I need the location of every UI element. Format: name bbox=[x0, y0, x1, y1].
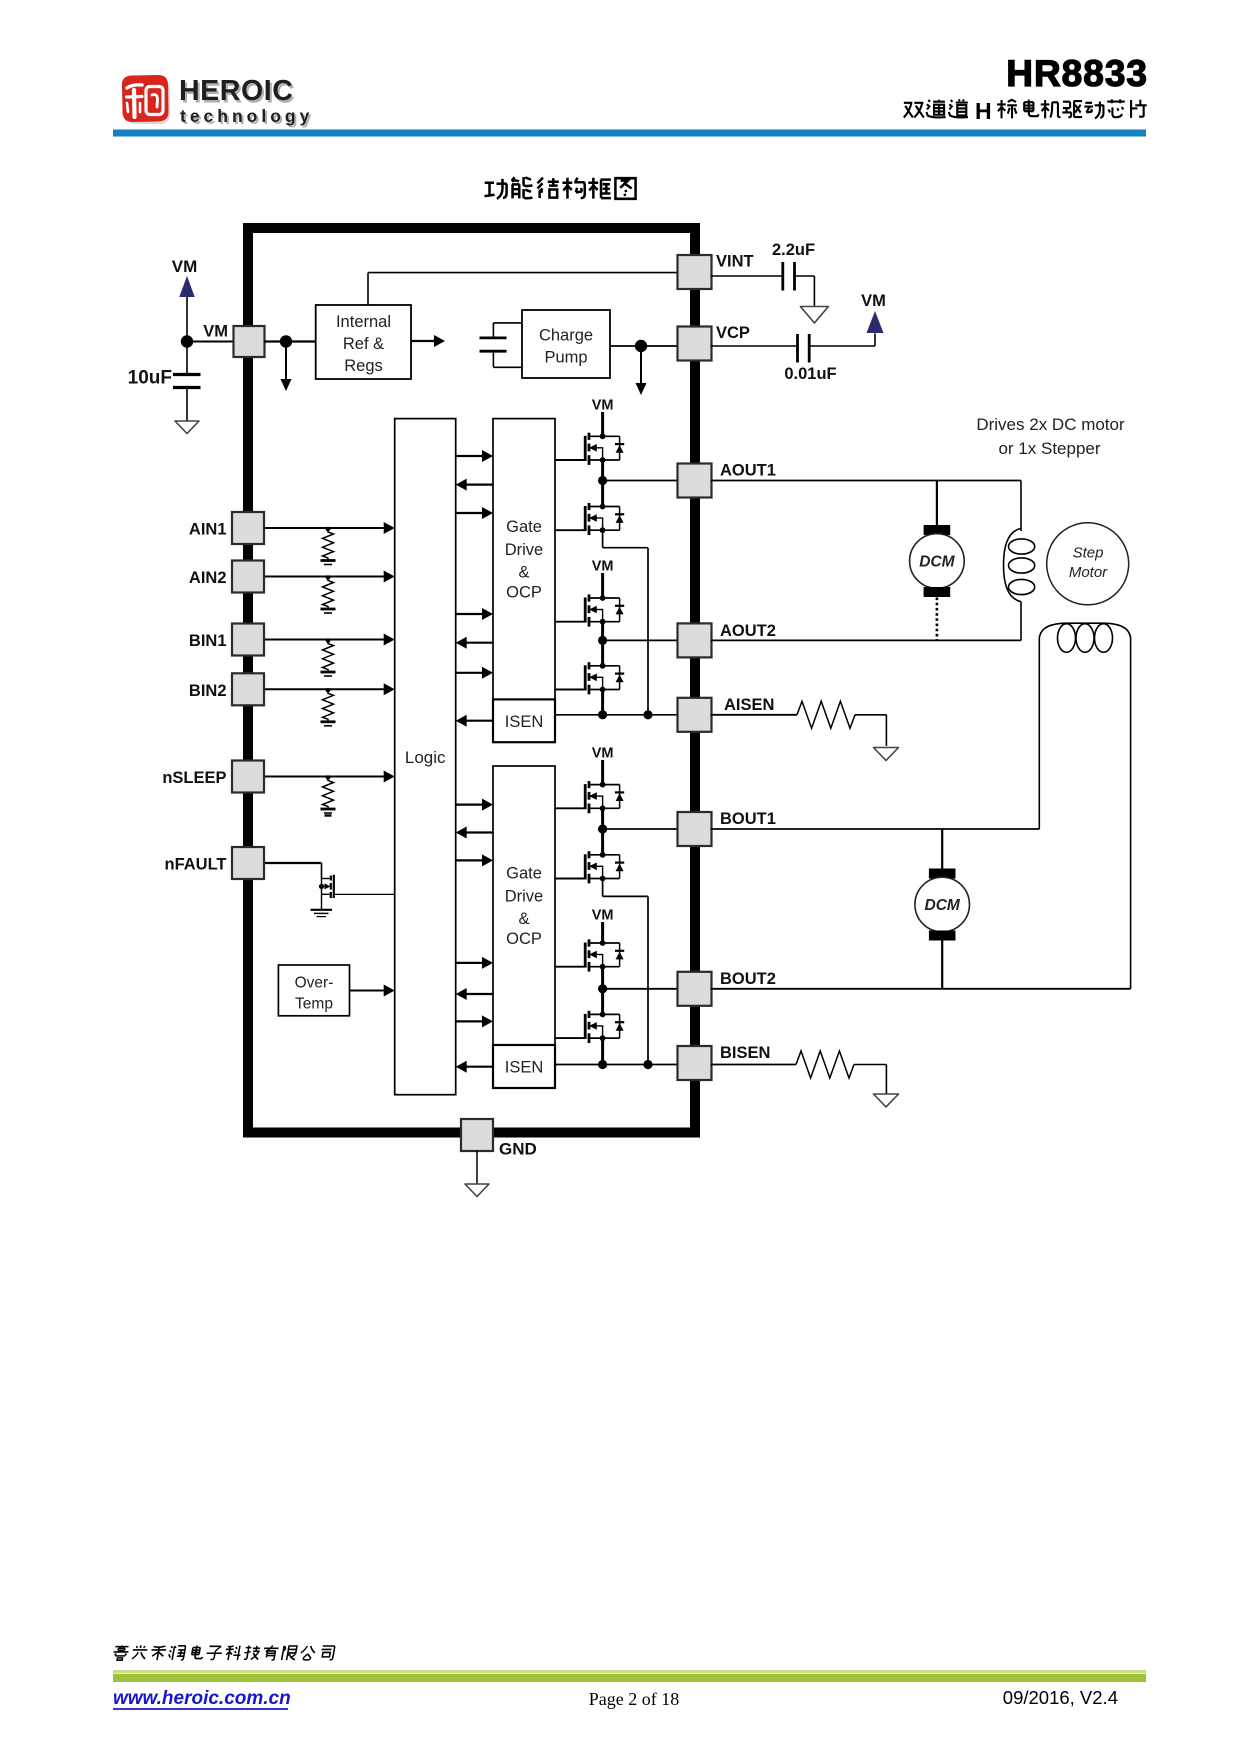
svg-text:VM: VM bbox=[203, 323, 228, 341]
svg-text:DCM: DCM bbox=[925, 897, 961, 914]
svg-text:Motor: Motor bbox=[1069, 564, 1108, 581]
svg-text:technology: technology bbox=[180, 106, 313, 126]
svg-text:VCP: VCP bbox=[716, 324, 750, 342]
svg-text:Logic: Logic bbox=[405, 748, 446, 767]
svg-text:VINT: VINT bbox=[716, 253, 754, 271]
svg-text:DCM: DCM bbox=[919, 554, 955, 571]
svg-text:&: & bbox=[518, 910, 529, 928]
svg-text:Pump: Pump bbox=[544, 349, 587, 367]
svg-text:nFAULT: nFAULT bbox=[164, 856, 226, 874]
svg-text:AISEN: AISEN bbox=[724, 696, 774, 714]
svg-text:HEROIC: HEROIC bbox=[179, 75, 293, 107]
svg-text:AOUT2: AOUT2 bbox=[720, 622, 776, 640]
svg-text:www.heroic.com.cn: www.heroic.com.cn bbox=[113, 1688, 291, 1709]
svg-text:Gate: Gate bbox=[506, 865, 542, 883]
svg-text:Ref &: Ref & bbox=[343, 335, 384, 353]
svg-text:H: H bbox=[975, 98, 992, 124]
svg-text:Gate: Gate bbox=[506, 518, 542, 536]
svg-text:HR8833: HR8833 bbox=[1006, 53, 1148, 94]
svg-text:VM: VM bbox=[592, 398, 614, 414]
svg-text:BOUT1: BOUT1 bbox=[720, 810, 776, 828]
svg-text:AOUT1: AOUT1 bbox=[720, 462, 776, 480]
svg-text:Charge: Charge bbox=[539, 327, 593, 345]
svg-text:Temp: Temp bbox=[295, 996, 333, 1013]
svg-text:Drive: Drive bbox=[505, 888, 544, 906]
svg-text:BIN2: BIN2 bbox=[189, 682, 227, 700]
svg-text:VM: VM bbox=[861, 292, 886, 310]
svg-text:Step: Step bbox=[1073, 545, 1104, 562]
svg-text:AIN1: AIN1 bbox=[189, 521, 227, 539]
svg-text:Internal: Internal bbox=[336, 313, 391, 331]
svg-text:OCP: OCP bbox=[506, 930, 542, 948]
svg-text:Over-: Over- bbox=[295, 975, 334, 992]
svg-text:10uF: 10uF bbox=[128, 368, 172, 389]
svg-text:or 1x Stepper: or 1x Stepper bbox=[998, 439, 1100, 458]
svg-text:OCP: OCP bbox=[506, 584, 542, 602]
svg-text:0.01uF: 0.01uF bbox=[784, 365, 836, 383]
svg-text:Page 2 of 18: Page 2 of 18 bbox=[589, 1689, 679, 1709]
svg-text:&: & bbox=[518, 564, 529, 582]
svg-text:ISEN: ISEN bbox=[505, 1059, 544, 1077]
svg-text:BOUT2: BOUT2 bbox=[720, 970, 776, 988]
svg-text:GND: GND bbox=[499, 1140, 537, 1159]
svg-text:nSLEEP: nSLEEP bbox=[162, 769, 226, 787]
svg-text:VM: VM bbox=[172, 257, 198, 276]
svg-text:ISEN: ISEN bbox=[505, 713, 544, 731]
svg-text:VM: VM bbox=[592, 559, 614, 575]
svg-text:2.2uF: 2.2uF bbox=[772, 241, 815, 259]
svg-text:Regs: Regs bbox=[344, 357, 383, 375]
svg-text:Drive: Drive bbox=[505, 541, 544, 559]
svg-text:VM: VM bbox=[592, 908, 614, 924]
svg-text:BIN1: BIN1 bbox=[189, 632, 227, 650]
svg-text:VM: VM bbox=[592, 746, 614, 762]
svg-text:09/2016, V2.4: 09/2016, V2.4 bbox=[1003, 1687, 1118, 1708]
svg-text:AIN2: AIN2 bbox=[189, 569, 227, 587]
svg-text:BISEN: BISEN bbox=[720, 1044, 770, 1062]
svg-text:Drives 2x DC motor: Drives 2x DC motor bbox=[976, 415, 1125, 434]
